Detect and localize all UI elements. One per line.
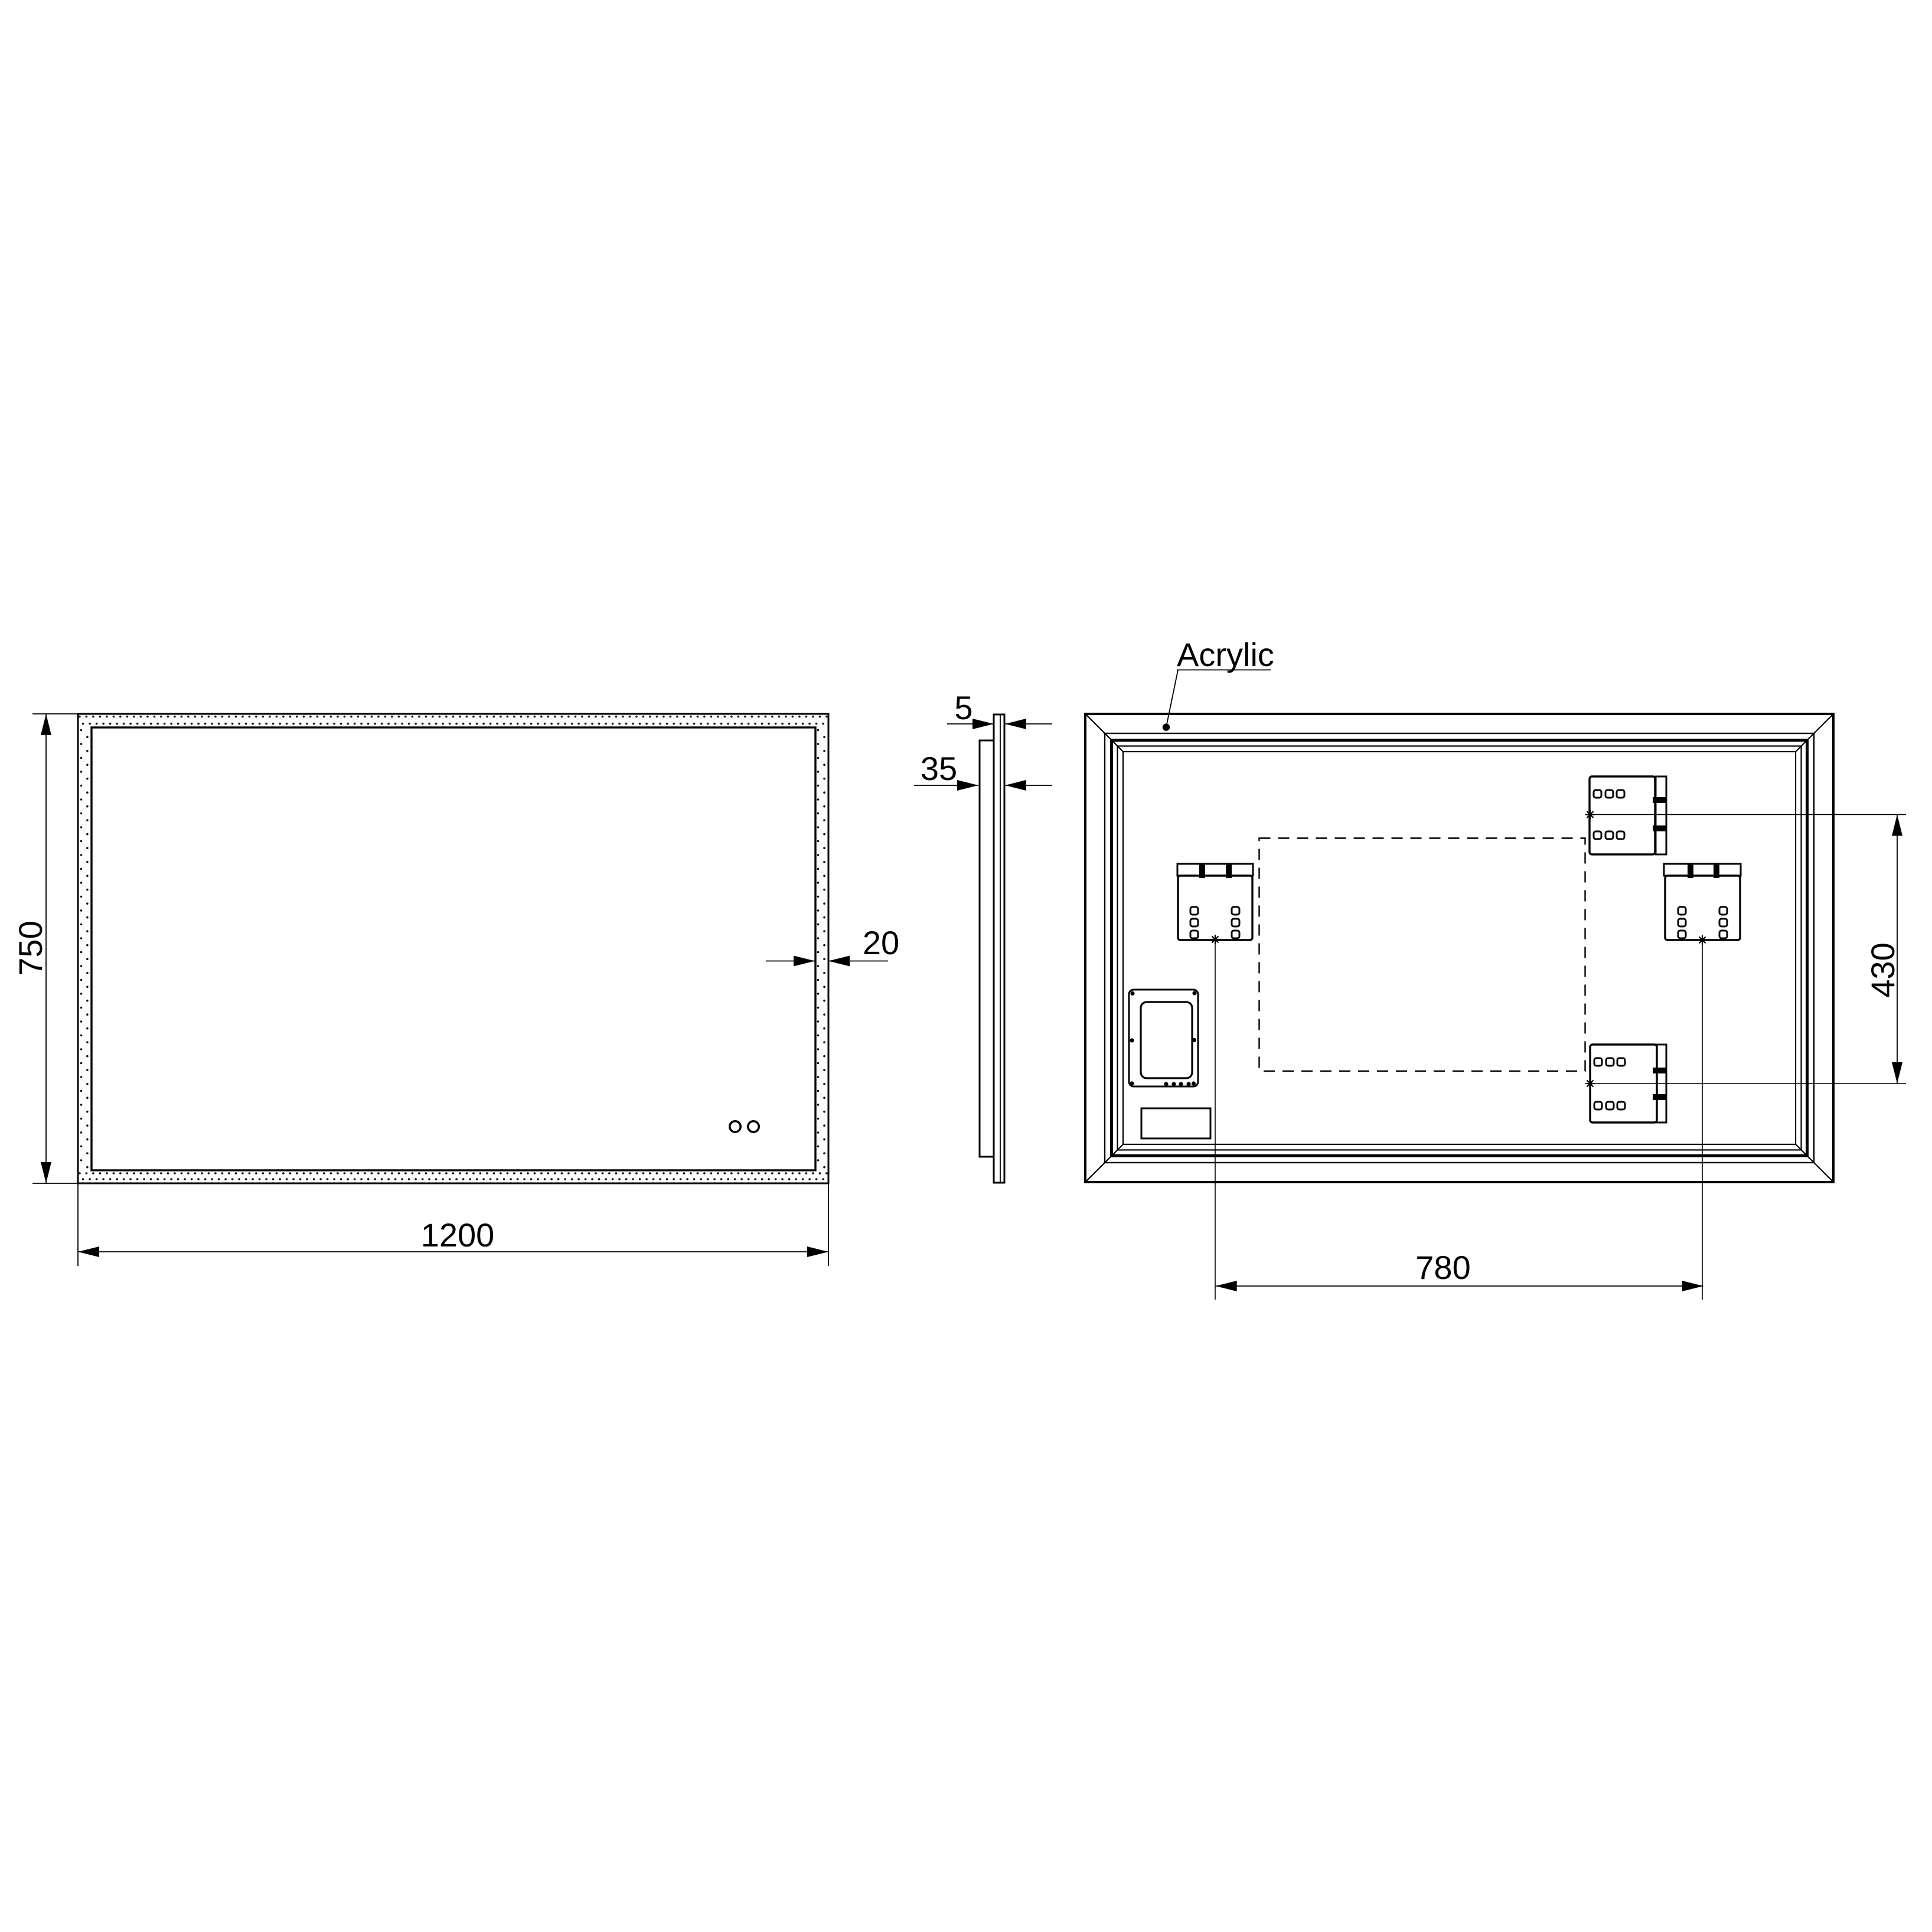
svg-text:35: 35 (921, 750, 957, 787)
svg-text:750: 750 (12, 921, 49, 975)
svg-text:20: 20 (863, 924, 899, 961)
svg-text:5: 5 (954, 689, 972, 726)
svg-text:430: 430 (1864, 942, 1901, 997)
svg-text:780: 780 (1415, 1249, 1470, 1286)
svg-text:Acrylic: Acrylic (1177, 636, 1274, 673)
svg-text:1200: 1200 (421, 1216, 495, 1254)
